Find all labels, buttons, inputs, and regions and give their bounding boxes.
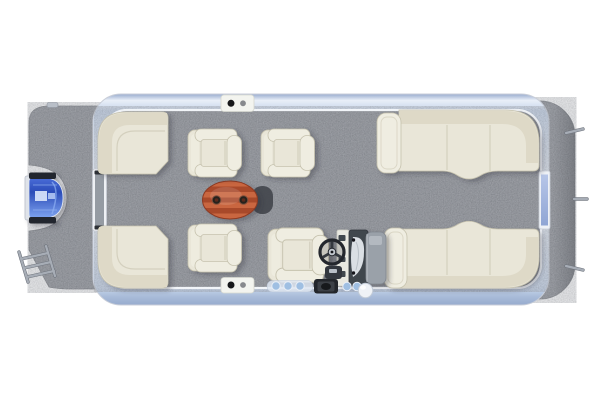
pontoon-floorplan-svg: [0, 0, 600, 400]
dash-knob-bottom: [352, 271, 355, 274]
trolling-motor: [25, 173, 63, 224]
speaker-cone: [321, 283, 331, 290]
cup-holder-4: [343, 282, 351, 290]
cup-holder-3: [296, 282, 304, 290]
bow-gate-panel: [95, 174, 104, 226]
console-body-top: [369, 236, 382, 245]
bow-gate: [93, 169, 107, 231]
latch-pin-dark: [228, 100, 235, 107]
teak-table: [203, 181, 258, 219]
lounge-armrest: [384, 228, 407, 288]
cup-holder-2: [284, 282, 292, 290]
top-gate-latch: [221, 95, 254, 112]
motor-cap-top: [29, 173, 56, 180]
armchair-top-1: [188, 129, 242, 177]
dash-knob-top: [352, 238, 355, 241]
motor-cap-bottom: [29, 217, 56, 224]
latch-plate: [221, 278, 254, 294]
column-detail: [329, 269, 337, 273]
latch-pin-dark: [228, 282, 235, 289]
bottom-gate-latch: [221, 278, 254, 294]
latch-plate: [221, 95, 254, 112]
console-switch-1: [339, 235, 346, 241]
corner-couch-bottom-left: [98, 226, 168, 288]
wheel-hub-center: [331, 251, 334, 254]
latch-pin-gray: [240, 282, 246, 288]
stern-gate: [539, 171, 550, 229]
round-fender: [358, 283, 372, 297]
armchair-bottom: [188, 224, 242, 272]
latch-pin-gray: [240, 100, 246, 106]
cup-holder-right-inner: [242, 198, 246, 202]
corner-couch-top-left: [98, 112, 168, 174]
cup-holder-left-inner: [215, 198, 219, 202]
armchair-top-2: [261, 129, 315, 177]
chaise-lounge-top-right: [377, 110, 539, 179]
cup-holder-1: [272, 282, 280, 290]
chaise-lounge-bottom-right: [384, 221, 539, 288]
boat-render-stage: [0, 0, 600, 400]
bow-fitting: [47, 103, 58, 108]
fender-highlight: [360, 285, 366, 289]
helm-console: [337, 230, 386, 286]
motor-detail-small: [48, 193, 55, 199]
stern-gate-panel: [541, 175, 548, 226]
motor-detail-panel: [35, 191, 47, 201]
